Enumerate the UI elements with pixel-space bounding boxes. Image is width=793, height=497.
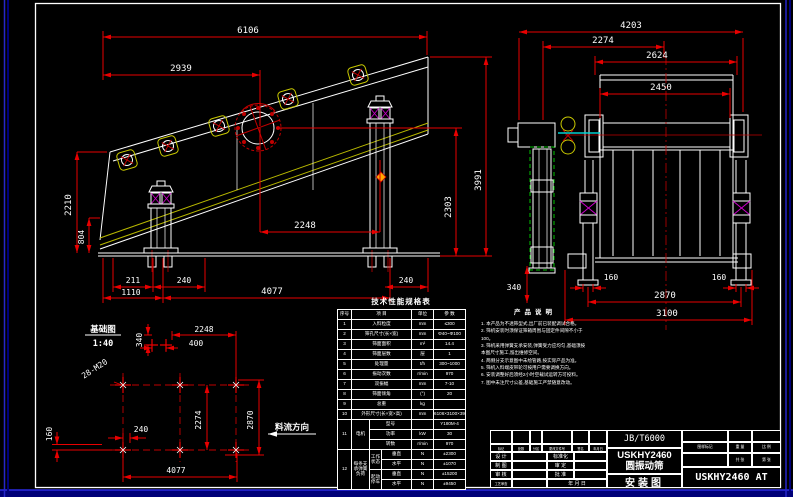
title-block: 标记 处数 分区 更改文件号 签名 年月日 设 计 标准化 制 图 审 定 审 … bbox=[490, 430, 781, 488]
field-date: 年 月 日 bbox=[547, 479, 607, 488]
note-item: 4. 两侧分支示意图中未绘管路,按实际产品为准。 bbox=[481, 357, 589, 364]
field-approve: 批 准 bbox=[547, 470, 574, 479]
revision-col: 更改文件号 bbox=[542, 444, 572, 452]
dim-804: 804 bbox=[77, 230, 86, 245]
sheet-number: 第 张 bbox=[752, 453, 781, 467]
support-springs bbox=[578, 160, 751, 285]
note-item: 5. 筛机入料端皮带轮可按用户需要调换方向。 bbox=[481, 364, 589, 371]
field-process: 工艺审查 bbox=[490, 479, 512, 488]
dim-2303: 2303 bbox=[444, 196, 454, 218]
note-item: 7. 图中未注尺寸公差,基础施工严禁随意改动。 bbox=[481, 379, 589, 386]
spec-row: 6振动次数r/min970 bbox=[338, 370, 466, 380]
spec-row: 4筛面层数层1 bbox=[338, 350, 466, 360]
dim-2274-foundation: 2274 bbox=[194, 410, 203, 429]
spec-row: 1入料粒度mm≤300 bbox=[338, 320, 466, 330]
dim-2870-end: 2870 bbox=[654, 291, 676, 301]
dim-4203: 4203 bbox=[620, 21, 642, 31]
dim-2248-side: 2248 bbox=[294, 221, 316, 231]
anchor-bolt-label: 28-M20 bbox=[80, 357, 109, 380]
exciter-flange bbox=[235, 103, 281, 151]
dim-340-foundation: 340 bbox=[135, 333, 144, 348]
dim-2274-end: 2274 bbox=[592, 36, 614, 46]
drawing-number: USKHY2460 AT bbox=[682, 467, 781, 488]
dim-4077-foundation: 4077 bbox=[166, 466, 185, 475]
dim-6106: 6106 bbox=[237, 26, 259, 36]
product-notes: 产品说明 1. 本产品为不透筛型式,出厂前已装配调试合格。 2. 筛机安装时须保… bbox=[481, 306, 589, 386]
field-draft: 制 图 bbox=[490, 461, 512, 470]
field-approve-tech: 审 定 bbox=[547, 461, 574, 470]
dim-160-foundation: 160 bbox=[45, 427, 54, 442]
revision-col: 签名 bbox=[572, 444, 589, 452]
spec-row: 7双振幅mm7-10 bbox=[338, 380, 466, 390]
spec-motor-row: 11电机 型号Y180M-4 bbox=[338, 420, 466, 430]
dim-240-foundation: 240 bbox=[134, 425, 149, 434]
anchor-bolt-holes bbox=[115, 339, 244, 458]
dim-1110: 1110 bbox=[121, 288, 140, 297]
field-design: 设 计 bbox=[490, 452, 512, 461]
revision-col: 处数 bbox=[512, 444, 530, 452]
weight-label: 重 量 bbox=[728, 442, 752, 453]
dim-240-right: 240 bbox=[399, 276, 414, 285]
notes-title: 产品说明 bbox=[481, 306, 589, 316]
cad-viewport: 6106 2939 2210 804 211 240 1110 4077 240… bbox=[0, 0, 793, 497]
field-check: 审 核 bbox=[490, 470, 512, 479]
revision-col: 标记 bbox=[490, 444, 512, 452]
note-item: 3. 筛机采用弹簧支承安装,弹簧受力应均匀,基础须按本图尺寸施工,留出维修空间。 bbox=[481, 342, 589, 357]
dim-2870-foundation: 2870 bbox=[246, 410, 255, 429]
spec-header-row: 序号项 目 单位参 数 bbox=[338, 310, 466, 320]
sheet-name: 安装图 bbox=[607, 474, 682, 488]
dim-2450: 2450 bbox=[650, 83, 672, 93]
bolt-plates bbox=[116, 64, 369, 171]
spec-row: 3筛面面积m²14.4 bbox=[338, 340, 466, 350]
motor-assembly bbox=[508, 117, 600, 273]
note-item: 1. 本产品为不透筛型式,出厂前已装配调试合格。 bbox=[481, 320, 589, 327]
dim-2248-foundation: 2248 bbox=[194, 325, 213, 334]
foundation-scale: 1:40 bbox=[93, 339, 113, 349]
spec-table: 技术性能规格表 序号项 目 单位参 数 1入料粒度mm≤300 2筛孔尺寸(长×… bbox=[337, 296, 465, 490]
spec-row: 8筛面倾角(°)20 bbox=[338, 390, 466, 400]
dim-3991: 3991 bbox=[474, 169, 484, 191]
dim-160-left: 160 bbox=[604, 273, 619, 282]
foundation-title: 基础图 bbox=[89, 324, 116, 335]
end-view-drawing: 4203 2274 2624 2450 340 160 160 2870 310… bbox=[507, 21, 762, 330]
revision-col: 年月日 bbox=[589, 444, 607, 452]
note-item: 6. 安装调整好后须经2小时空载试运转方可投料。 bbox=[481, 371, 589, 378]
reference-diamond bbox=[376, 172, 386, 182]
note-item: 2. 筛机安装时须保证筛箱周围与固定件间隙不小于100。 bbox=[481, 327, 589, 342]
spec-row: 10外形尺寸(长×宽×高)mm6106×3100×3991 bbox=[338, 410, 466, 420]
product-name: 圆振动筛 bbox=[617, 461, 671, 472]
dim-340-end: 340 bbox=[507, 283, 522, 292]
dim-3100: 3100 bbox=[656, 309, 678, 319]
left-support bbox=[144, 181, 178, 272]
side-view-drawing: 6106 2939 2210 804 211 240 1110 4077 240… bbox=[64, 26, 492, 303]
dim-2210: 2210 bbox=[64, 194, 74, 216]
revision-col: 分区 bbox=[530, 444, 542, 452]
dim-2939: 2939 bbox=[170, 64, 192, 74]
standard-code: JB/T6000 bbox=[607, 430, 682, 448]
spec-row: 2筛孔尺寸(长×宽)mmΦ40~Φ100 bbox=[338, 330, 466, 340]
sheets-total: 共 张 bbox=[728, 453, 752, 467]
spec-table-title: 技术性能规格表 bbox=[337, 296, 465, 307]
field-standardize: 标准化 bbox=[547, 452, 574, 461]
drawing-mark-label: 图样标记 bbox=[682, 442, 728, 453]
scale-label: 比 例 bbox=[752, 442, 781, 453]
dim-240-left: 240 bbox=[177, 276, 192, 285]
dim-4077-side: 4077 bbox=[261, 287, 283, 297]
dim-211: 211 bbox=[126, 276, 141, 285]
spec-row: 5处理量t/h300~1000 bbox=[338, 360, 466, 370]
dim-400: 400 bbox=[189, 339, 204, 348]
spec-spring-row: 12 每条支承弹簧负荷 工作状态 垂直N±2300 bbox=[338, 450, 466, 460]
flow-direction: 料流方向 bbox=[268, 422, 316, 434]
foundation-plan: 基础图 1:40 bbox=[45, 324, 316, 482]
spec-row: 9总重kg bbox=[338, 400, 466, 410]
dim-160-right: 160 bbox=[712, 273, 727, 282]
dim-2624: 2624 bbox=[646, 51, 668, 61]
flow-direction-label: 料流方向 bbox=[275, 422, 309, 433]
product-model: USKHY2460 bbox=[617, 450, 671, 461]
